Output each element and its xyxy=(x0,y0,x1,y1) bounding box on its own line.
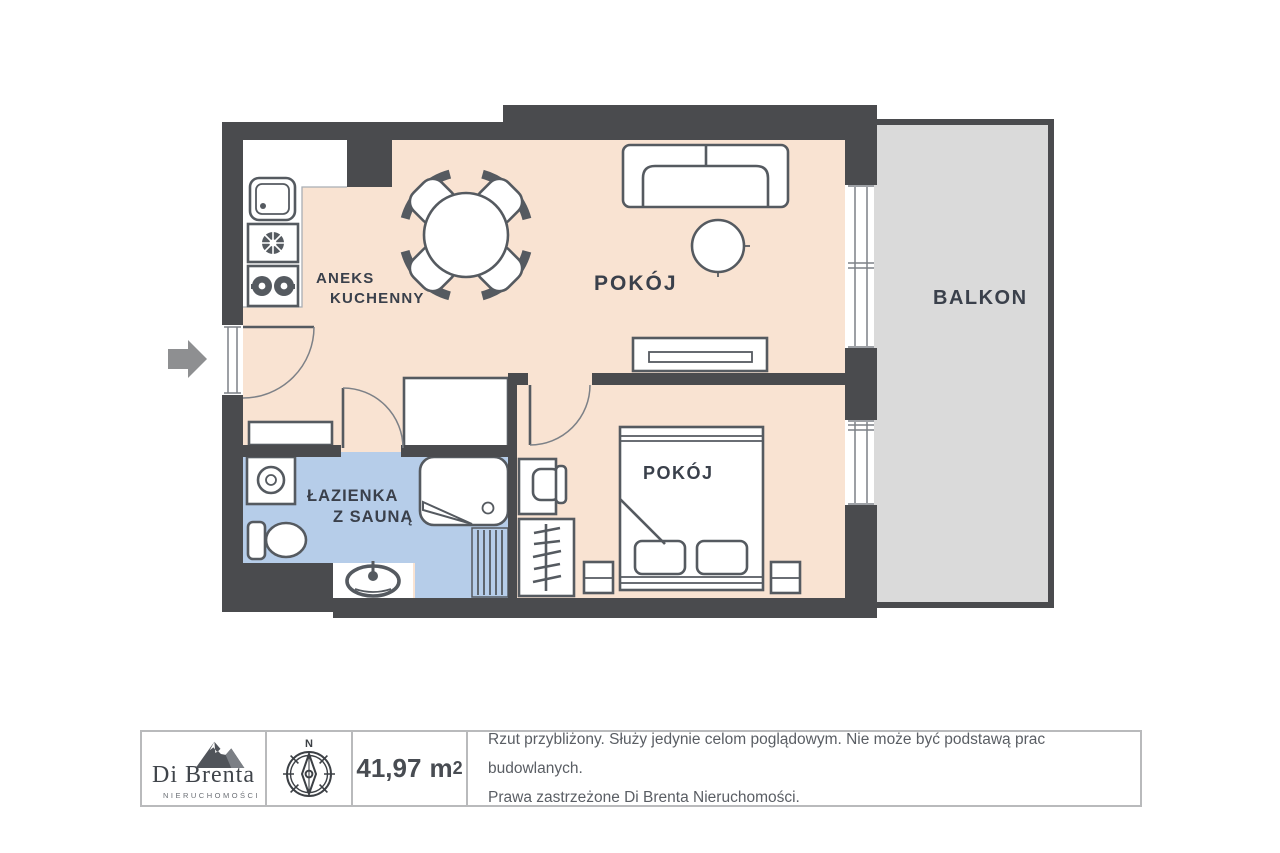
room-label-bathroom: ŁAZIENKA Z SAUNĄ xyxy=(307,486,413,528)
shower-icon xyxy=(420,457,508,525)
wall xyxy=(347,140,392,187)
kitchen-label-line2: KUCHENNY xyxy=(330,289,425,309)
room-label-bedroom: POKÓJ xyxy=(643,463,714,484)
area-unit: m xyxy=(429,753,452,784)
compass-icon: N xyxy=(277,736,341,802)
compass: N xyxy=(267,732,353,805)
kitchen-sink-icon xyxy=(250,178,295,220)
floor-plan-page: ANEKS KUCHENNY POKÓJ BALKON ŁAZIENKA Z S… xyxy=(0,0,1280,853)
mountain-icon xyxy=(188,738,252,768)
bathroom-label-line2: Z SAUNĄ xyxy=(333,507,413,528)
wall xyxy=(508,373,528,385)
nightstand xyxy=(771,562,800,593)
dining-table xyxy=(424,193,508,277)
wall xyxy=(845,348,877,420)
wall xyxy=(222,122,243,325)
pillow xyxy=(635,541,685,574)
pillow xyxy=(697,541,747,574)
wall xyxy=(508,385,517,598)
bathroom-sink-icon xyxy=(333,561,413,598)
area-value: 41,97m2 xyxy=(353,732,468,805)
cooktop-icon xyxy=(248,266,298,306)
bed xyxy=(620,427,763,590)
area-exponent: 2 xyxy=(453,758,463,779)
room-label-living: POKÓJ xyxy=(594,272,678,296)
disclaimer-line2: Prawa zastrzeżone Di Brenta Nieruchomośc… xyxy=(488,783,800,812)
kitchen-label-line1: ANEKS xyxy=(316,270,375,287)
wall xyxy=(845,105,877,185)
area-number: 41,97 xyxy=(356,753,421,784)
entrance-arrow-icon xyxy=(168,340,207,378)
wall xyxy=(222,122,503,140)
wall xyxy=(333,598,877,618)
tv-stand xyxy=(633,338,767,371)
wall xyxy=(222,563,333,612)
wardrobe xyxy=(519,519,574,596)
disclaimer: Rzut przybliżony. Służy jedynie celom po… xyxy=(468,732,1140,805)
shoe-cabinet xyxy=(249,422,332,445)
sofa xyxy=(623,145,788,207)
wall xyxy=(592,373,845,385)
wall xyxy=(503,105,877,140)
footer-bar: Di Brenta NIERUCHOMOŚCI N 41,97m2 Rzut p… xyxy=(140,730,1142,807)
wall xyxy=(240,445,341,457)
floor-plan-drawing xyxy=(0,0,1280,710)
wall xyxy=(845,505,877,618)
toilet-icon xyxy=(248,522,306,559)
bathroom-label-line1: ŁAZIENKA xyxy=(307,487,398,505)
sauna-bench xyxy=(472,528,508,597)
balcony-floor xyxy=(871,119,1054,608)
nightstand xyxy=(584,562,613,593)
compass-north-label: N xyxy=(305,738,313,750)
disclaimer-line1: Rzut przybliżony. Służy jedynie celom po… xyxy=(488,725,1140,783)
balcony-window-bedroom xyxy=(848,420,874,505)
desk-chair xyxy=(533,466,566,503)
washing-machine-icon xyxy=(247,457,295,504)
hall-closet xyxy=(404,378,508,447)
brand-logo: Di Brenta NIERUCHOMOŚCI xyxy=(142,732,267,805)
vent-fan-icon xyxy=(248,224,298,262)
wall xyxy=(222,395,243,563)
room-label-balcony: BALKON xyxy=(933,287,1028,310)
brand-subtitle: NIERUCHOMOŚCI xyxy=(163,791,260,800)
room-label-kitchen: ANEKS KUCHENNY xyxy=(316,269,425,309)
wall xyxy=(401,445,508,457)
balcony-window-living xyxy=(848,185,874,348)
